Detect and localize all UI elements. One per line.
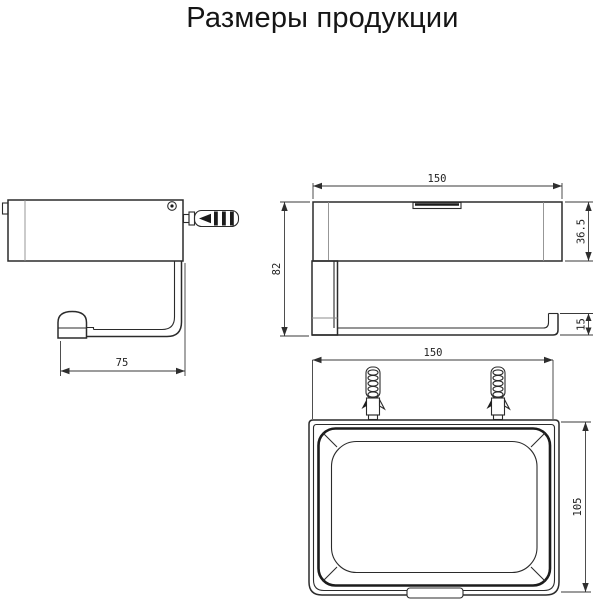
- top-view: 150: [309, 347, 591, 598]
- technical-drawing-canvas: 75: [0, 0, 600, 600]
- dimension-drawing-page: Размеры продукции: [0, 0, 600, 600]
- dimension-36-5: 36.5: [565, 202, 593, 261]
- tray-miter-bottom-right: [531, 567, 545, 581]
- wall-anchor-right-icon: [487, 367, 510, 420]
- side-body-outline: [8, 200, 183, 261]
- dimension-15-label: 15: [576, 318, 588, 331]
- front-body-outline: [313, 202, 562, 261]
- front-tab: [407, 588, 463, 598]
- dimension-36-5-label: 36.5: [576, 219, 588, 244]
- dimension-105-label: 105: [572, 498, 584, 517]
- roll-bar-inner: [94, 261, 175, 330]
- top-body-outline: [309, 420, 559, 595]
- wall-anchor-horizontal-icon: [184, 211, 239, 227]
- tray-miter-bottom-left: [323, 567, 337, 581]
- tray-rim: [319, 429, 551, 586]
- end-cap-outline: [58, 312, 87, 339]
- dimension-150-top: 150: [313, 347, 554, 419]
- tray-inner-rim: [332, 442, 538, 573]
- side-back-lug: [3, 203, 9, 214]
- roll-bar-step: [87, 328, 94, 330]
- tray-miter-top-left: [323, 433, 337, 447]
- dimension-75: 75: [61, 263, 186, 376]
- dimension-82-label: 82: [271, 263, 283, 276]
- tray-miter-top-right: [531, 433, 545, 447]
- front-view: 150 82 36.5: [271, 173, 593, 336]
- front-bar-upturn-outer: [553, 314, 558, 336]
- side-view: 75: [3, 200, 239, 376]
- front-bar-upturn-inner: [544, 314, 549, 329]
- dimension-15: 15: [560, 314, 593, 336]
- dimension-150-top-label: 150: [424, 347, 443, 359]
- dimension-82: 82: [271, 202, 310, 336]
- top-body-inner-line: [314, 425, 555, 591]
- roll-bar-outer: [87, 261, 182, 337]
- dimension-105: 105: [561, 422, 591, 592]
- wall-anchor-left-icon: [362, 367, 385, 420]
- dimension-75-label: 75: [116, 357, 129, 369]
- dimension-150-front: 150: [313, 173, 562, 199]
- screw-head-dot: [170, 204, 173, 207]
- dimension-150-front-label: 150: [428, 173, 447, 185]
